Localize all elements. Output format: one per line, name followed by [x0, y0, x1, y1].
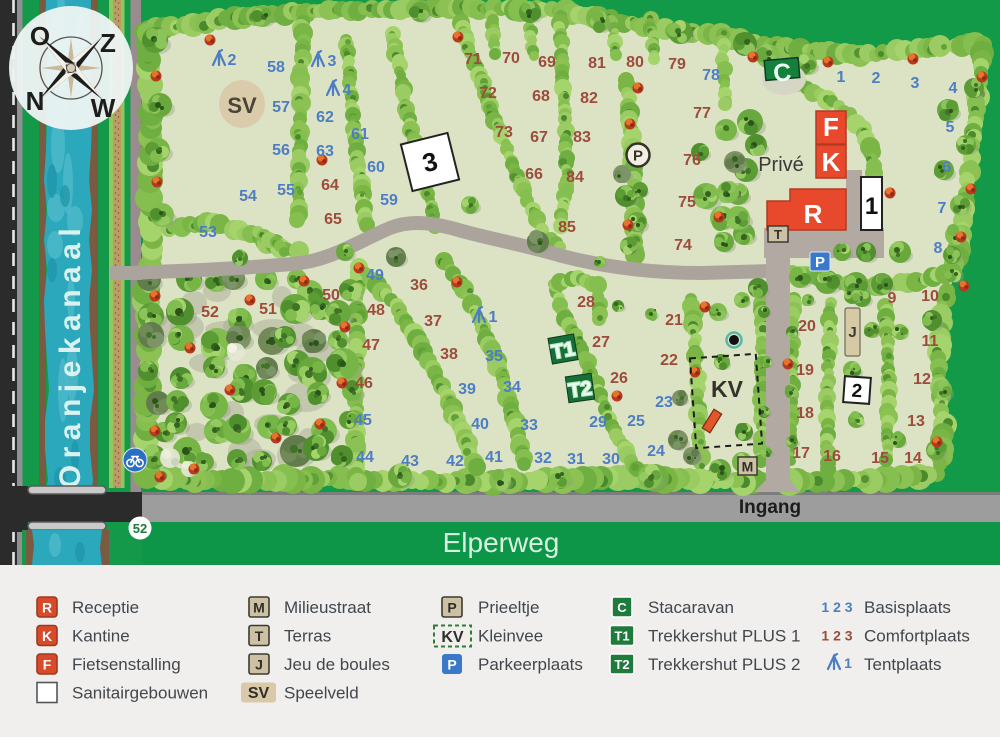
svg-text:70: 70 — [502, 50, 520, 67]
svg-text:47: 47 — [362, 337, 380, 354]
svg-text:Ingang: Ingang — [739, 497, 801, 518]
svg-text:C: C — [772, 58, 792, 87]
svg-text:57: 57 — [272, 99, 290, 116]
svg-text:46: 46 — [355, 375, 373, 392]
svg-text:40: 40 — [471, 416, 489, 433]
svg-text:R: R — [804, 199, 823, 229]
svg-text:KV: KV — [441, 629, 464, 646]
svg-text:Stacaravan: Stacaravan — [648, 598, 734, 617]
svg-text:19: 19 — [796, 362, 814, 379]
svg-text:78: 78 — [702, 67, 720, 84]
svg-text:42: 42 — [446, 453, 464, 470]
svg-text:48: 48 — [367, 302, 385, 319]
svg-text:M: M — [253, 600, 265, 616]
svg-text:T1: T1 — [550, 338, 577, 364]
svg-text:K: K — [822, 147, 841, 177]
svg-text:45: 45 — [354, 412, 372, 429]
svg-text:13: 13 — [907, 413, 925, 430]
svg-text:82: 82 — [580, 90, 598, 107]
svg-text:28: 28 — [577, 294, 595, 311]
svg-text:11: 11 — [922, 333, 939, 350]
svg-text:Comfortplaats: Comfortplaats — [864, 627, 970, 646]
svg-text:Terras: Terras — [284, 627, 331, 646]
svg-text:4: 4 — [949, 80, 958, 97]
svg-text:52: 52 — [201, 304, 219, 321]
svg-text:50: 50 — [322, 287, 340, 304]
svg-text:16: 16 — [823, 448, 841, 465]
svg-text:52: 52 — [133, 521, 147, 536]
svg-text:65: 65 — [324, 211, 342, 228]
svg-text:55: 55 — [277, 182, 295, 199]
svg-text:37: 37 — [424, 313, 442, 330]
svg-text:60: 60 — [367, 159, 385, 176]
svg-text:18: 18 — [796, 405, 814, 422]
svg-text:64: 64 — [321, 177, 339, 194]
svg-text:SV: SV — [248, 685, 270, 702]
svg-text:K: K — [42, 628, 52, 644]
svg-text:17: 17 — [792, 445, 810, 462]
svg-text:M: M — [742, 459, 754, 475]
svg-text:63: 63 — [316, 143, 334, 160]
svg-text:76: 76 — [683, 152, 701, 169]
svg-text:Elperweg: Elperweg — [443, 527, 560, 558]
svg-text:41: 41 — [485, 449, 503, 466]
svg-text:14: 14 — [904, 450, 922, 467]
svg-text:5: 5 — [946, 119, 955, 136]
svg-text:66: 66 — [525, 166, 543, 183]
svg-text:Oranjekanaal: Oranjekanaal — [54, 222, 87, 488]
svg-text:53: 53 — [199, 224, 217, 241]
svg-text:Speelveld: Speelveld — [284, 684, 359, 703]
svg-text:T2: T2 — [567, 377, 593, 402]
svg-text:2: 2 — [851, 381, 863, 403]
svg-text:4: 4 — [343, 82, 352, 99]
svg-text:7: 7 — [938, 200, 947, 217]
svg-text:1: 1 — [489, 309, 498, 326]
svg-text:31: 31 — [567, 451, 585, 468]
svg-text:34: 34 — [503, 379, 521, 396]
svg-text:20: 20 — [798, 318, 816, 335]
svg-text:43: 43 — [401, 453, 419, 470]
svg-text:1 2 3: 1 2 3 — [821, 599, 852, 615]
svg-text:39: 39 — [458, 381, 476, 398]
svg-text:26: 26 — [610, 370, 628, 387]
svg-text:T2: T2 — [614, 657, 629, 672]
svg-text:W: W — [91, 93, 116, 123]
svg-text:77: 77 — [693, 105, 711, 122]
svg-text:P: P — [447, 657, 456, 673]
svg-text:P: P — [633, 148, 643, 165]
svg-text:Kantine: Kantine — [72, 627, 130, 646]
svg-text:R: R — [42, 600, 52, 616]
svg-text:Z: Z — [100, 28, 116, 58]
svg-text:10: 10 — [921, 288, 939, 305]
svg-text:44: 44 — [356, 449, 374, 466]
svg-text:F: F — [43, 657, 52, 673]
svg-text:12: 12 — [913, 371, 931, 388]
svg-text:Trekkershut PLUS 1: Trekkershut PLUS 1 — [648, 627, 800, 646]
svg-text:21: 21 — [665, 312, 683, 329]
svg-text:Parkeerplaats: Parkeerplaats — [478, 655, 583, 674]
svg-text:62: 62 — [316, 109, 334, 126]
svg-text:9: 9 — [888, 290, 897, 307]
svg-text:38: 38 — [440, 346, 458, 363]
svg-text:2: 2 — [872, 70, 881, 87]
svg-text:T: T — [255, 628, 264, 644]
svg-text:3: 3 — [911, 75, 920, 92]
svg-text:36: 36 — [410, 277, 428, 294]
svg-text:Basisplaats: Basisplaats — [864, 598, 951, 617]
svg-text:Kleinvee: Kleinvee — [478, 627, 543, 646]
svg-text:T: T — [774, 227, 782, 242]
svg-text:25: 25 — [627, 413, 645, 430]
svg-text:1 2 3: 1 2 3 — [821, 628, 852, 644]
svg-text:P: P — [815, 254, 825, 271]
svg-text:Fietsenstalling: Fietsenstalling — [72, 655, 181, 674]
svg-text:15: 15 — [871, 450, 889, 467]
svg-text:8: 8 — [934, 240, 943, 257]
svg-text:Receptie: Receptie — [72, 598, 139, 617]
svg-text:74: 74 — [674, 237, 692, 254]
svg-text:32: 32 — [534, 450, 552, 467]
svg-text:54: 54 — [239, 188, 257, 205]
svg-text:O: O — [30, 21, 50, 51]
svg-text:75: 75 — [678, 194, 696, 211]
svg-text:J: J — [255, 657, 263, 673]
svg-text:30: 30 — [602, 451, 620, 468]
svg-text:51: 51 — [259, 301, 277, 318]
svg-text:35: 35 — [485, 348, 503, 365]
svg-text:3: 3 — [328, 53, 337, 70]
svg-text:79: 79 — [668, 56, 686, 73]
svg-text:1: 1 — [844, 655, 852, 671]
svg-text:56: 56 — [272, 142, 290, 159]
svg-text:N: N — [26, 86, 45, 116]
svg-text:Privé: Privé — [758, 154, 804, 176]
svg-text:6: 6 — [943, 159, 952, 176]
svg-text:C: C — [617, 600, 627, 615]
svg-text:22: 22 — [660, 352, 678, 369]
svg-text:59: 59 — [380, 192, 398, 209]
svg-text:24: 24 — [647, 443, 665, 460]
svg-text:29: 29 — [589, 414, 607, 431]
svg-text:71: 71 — [464, 51, 482, 68]
svg-text:Trekkershut PLUS 2: Trekkershut PLUS 2 — [648, 655, 800, 674]
svg-text:27: 27 — [592, 334, 610, 351]
svg-text:Jeu de boules: Jeu de boules — [284, 655, 390, 674]
svg-text:67: 67 — [530, 129, 548, 146]
svg-text:SV: SV — [227, 93, 257, 118]
svg-text:73: 73 — [495, 124, 513, 141]
svg-text:Tentplaats: Tentplaats — [864, 655, 942, 674]
svg-text:23: 23 — [655, 394, 673, 411]
svg-text:80: 80 — [626, 54, 644, 71]
svg-text:J: J — [848, 324, 856, 341]
svg-text:Sanitairgebouwen: Sanitairgebouwen — [72, 684, 208, 703]
svg-text:F: F — [823, 112, 839, 142]
svg-text:KV: KV — [711, 376, 744, 402]
svg-text:58: 58 — [267, 59, 285, 76]
svg-text:Milieustraat: Milieustraat — [284, 598, 371, 617]
svg-text:83: 83 — [573, 129, 591, 146]
svg-text:P: P — [447, 600, 456, 616]
svg-text:Prieeltje: Prieeltje — [478, 598, 539, 617]
svg-text:85: 85 — [558, 219, 576, 236]
svg-text:84: 84 — [566, 169, 584, 186]
svg-text:69: 69 — [538, 54, 556, 71]
svg-text:61: 61 — [351, 126, 369, 143]
svg-text:1: 1 — [865, 193, 878, 220]
svg-text:72: 72 — [479, 85, 497, 102]
svg-text:81: 81 — [588, 55, 606, 72]
svg-text:1: 1 — [837, 69, 846, 86]
svg-text:68: 68 — [532, 88, 550, 105]
svg-text:33: 33 — [520, 417, 538, 434]
svg-text:49: 49 — [366, 267, 384, 284]
svg-text:2: 2 — [228, 52, 237, 69]
svg-text:T1: T1 — [614, 629, 629, 644]
